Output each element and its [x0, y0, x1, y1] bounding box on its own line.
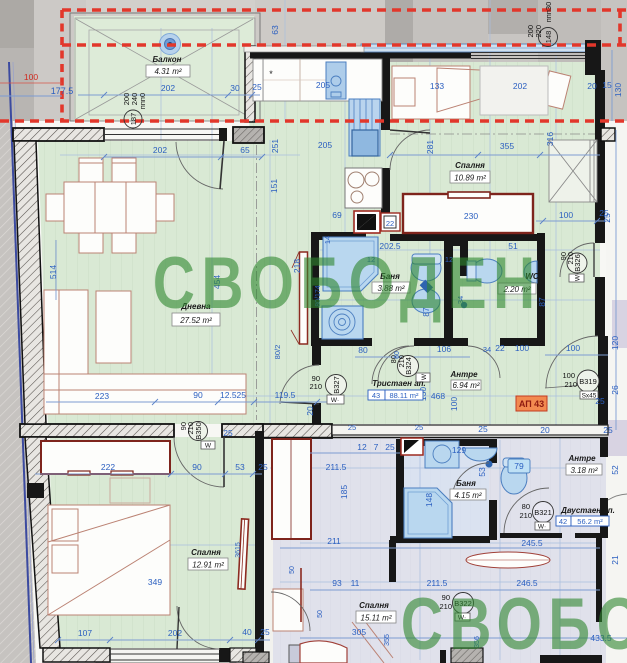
svg-text:W·: W·: [538, 524, 546, 531]
svg-text:Тристаен ап.: Тристаен ап.: [372, 379, 426, 388]
svg-text:50: 50: [317, 610, 324, 618]
svg-text:205: 205: [318, 140, 332, 150]
svg-text:W·: W·: [575, 273, 582, 281]
svg-text:3.18 m²: 3.18 m²: [570, 466, 597, 475]
svg-text:Баня: Баня: [456, 479, 476, 488]
svg-text:80: 80: [522, 502, 530, 511]
svg-text:106: 106: [437, 344, 451, 354]
svg-text:25: 25: [595, 396, 605, 406]
svg-text:65: 65: [240, 145, 250, 155]
svg-text:211.5: 211.5: [326, 462, 347, 472]
svg-text:223: 223: [95, 391, 109, 401]
svg-text:22: 22: [386, 219, 394, 228]
svg-text:60: 60: [394, 351, 401, 359]
svg-text:210: 210: [566, 252, 575, 265]
svg-text:53: 53: [477, 467, 487, 477]
svg-text:4.31 m²: 4.31 m²: [154, 67, 181, 76]
svg-text:30: 30: [230, 83, 240, 93]
svg-text:514: 514: [48, 265, 58, 279]
svg-text:148: 148: [424, 493, 434, 507]
svg-text:B319: B319: [579, 377, 597, 386]
svg-text:251: 251: [270, 139, 280, 153]
svg-text:56.2 m²: 56.2 m²: [577, 517, 603, 526]
svg-text:25: 25: [258, 462, 268, 472]
svg-text:210: 210: [309, 382, 322, 391]
svg-text:355: 355: [500, 141, 514, 151]
svg-text:100: 100: [559, 210, 573, 220]
svg-text:129: 129: [452, 445, 466, 455]
svg-text:Спалня: Спалня: [191, 548, 221, 557]
svg-text:50: 50: [289, 566, 296, 574]
svg-text:34: 34: [483, 345, 491, 354]
svg-text:177.5: 177.5: [51, 86, 74, 96]
svg-text:43: 43: [372, 391, 380, 400]
svg-text:26: 26: [610, 385, 620, 395]
svg-text:80/2: 80/2: [273, 345, 282, 360]
svg-text:202: 202: [161, 83, 175, 93]
svg-text:12.525: 12.525: [220, 390, 246, 400]
svg-text:6.94 m²: 6.94 m²: [452, 381, 479, 390]
svg-text:B321: B321: [534, 508, 552, 517]
svg-text:107: 107: [78, 628, 92, 638]
svg-text:130: 130: [613, 83, 623, 97]
svg-text:ппп0: ппп0: [138, 93, 147, 109]
svg-text:АП 43: АП 43: [519, 399, 544, 409]
svg-text:52: 52: [610, 465, 620, 475]
svg-text:25: 25: [602, 213, 612, 223]
svg-text:100: 100: [449, 397, 459, 411]
svg-text:25: 25: [223, 428, 233, 438]
svg-text:15.11 m²: 15.11 m²: [361, 614, 392, 623]
svg-text:11: 11: [351, 578, 360, 588]
svg-text:119.5: 119.5: [275, 390, 296, 400]
svg-text:211: 211: [327, 536, 341, 546]
svg-text:100: 100: [24, 72, 38, 82]
svg-text:3615: 3615: [235, 542, 242, 558]
svg-text:100: 100: [515, 343, 529, 353]
svg-text:245.5: 245.5: [521, 538, 543, 548]
svg-text:468: 468: [431, 391, 445, 401]
svg-text:355: 355: [384, 634, 391, 646]
svg-text:25: 25: [603, 425, 613, 435]
svg-text:151: 151: [269, 179, 279, 193]
svg-text:148: 148: [544, 31, 553, 44]
svg-text:40: 40: [242, 627, 252, 637]
svg-text:4.15 m²: 4.15 m²: [454, 491, 481, 500]
svg-text:7: 7: [374, 442, 379, 452]
svg-text:12: 12: [357, 442, 367, 452]
svg-text:СВОБОД: СВОБОД: [401, 584, 627, 663]
svg-text:220: 220: [534, 25, 543, 38]
svg-text:90: 90: [193, 390, 203, 400]
svg-text:*: *: [269, 69, 273, 79]
svg-text:349: 349: [148, 577, 162, 587]
svg-text:205: 205: [316, 80, 330, 90]
svg-text:B327: B327: [332, 376, 341, 394]
svg-text:25: 25: [415, 423, 423, 432]
svg-text:W: W: [205, 443, 212, 450]
svg-text:10.89 m²: 10.89 m²: [454, 174, 486, 183]
svg-text:W·: W·: [331, 397, 339, 404]
svg-text:316: 316: [545, 132, 555, 146]
svg-text:Антре: Антре: [567, 454, 596, 463]
svg-text:305: 305: [352, 627, 366, 637]
svg-text:79: 79: [514, 461, 524, 471]
svg-text:120: 120: [610, 336, 620, 350]
svg-text:Спалня: Спалня: [455, 161, 485, 170]
svg-text:202: 202: [153, 145, 167, 155]
svg-text:22: 22: [495, 343, 505, 353]
svg-text:Антре: Антре: [449, 370, 478, 379]
svg-text:187: 187: [129, 113, 138, 126]
svg-text:133: 133: [430, 81, 444, 91]
svg-text:100: 100: [562, 371, 575, 380]
svg-text:185: 185: [339, 485, 349, 499]
svg-text:230: 230: [464, 211, 478, 221]
svg-text:80: 80: [358, 345, 368, 355]
svg-text:25: 25: [260, 627, 270, 637]
svg-text:53: 53: [235, 462, 245, 472]
svg-text:20: 20: [305, 406, 315, 416]
svg-text:20: 20: [587, 81, 597, 91]
svg-text:93: 93: [332, 578, 342, 588]
svg-text:ппп30: ппп30: [544, 2, 553, 23]
svg-text:42: 42: [559, 517, 567, 526]
svg-text:25: 25: [348, 423, 356, 432]
svg-text:202: 202: [168, 628, 182, 638]
svg-text:210: 210: [186, 422, 195, 435]
svg-text:281: 281: [425, 140, 435, 154]
svg-text:25: 25: [385, 442, 395, 452]
svg-text:20: 20: [540, 425, 550, 435]
svg-text:12.91 m²: 12.91 m²: [192, 561, 224, 570]
svg-text:25: 25: [478, 424, 488, 434]
svg-text:202: 202: [513, 81, 527, 91]
svg-text:B350: B350: [194, 422, 203, 440]
svg-text:63: 63: [270, 25, 280, 35]
svg-text:90: 90: [192, 462, 202, 472]
svg-text:15: 15: [602, 80, 612, 90]
svg-text:100: 100: [566, 343, 580, 353]
svg-text:88.11 m²: 88.11 m²: [389, 391, 419, 400]
svg-text:21: 21: [610, 555, 620, 565]
svg-text:Спалня: Спалня: [359, 601, 389, 610]
svg-text:Балкон: Балкон: [153, 55, 182, 64]
svg-text:Двустаен ап.: Двустаен ап.: [560, 506, 615, 515]
svg-text:69: 69: [332, 210, 342, 220]
svg-text:25: 25: [252, 82, 262, 92]
svg-text:222: 222: [101, 462, 115, 472]
svg-text:210: 210: [519, 511, 532, 520]
svg-text:210: 210: [564, 380, 577, 389]
svg-text:СВОБОДЕН: СВОБОДЕН: [153, 243, 542, 325]
